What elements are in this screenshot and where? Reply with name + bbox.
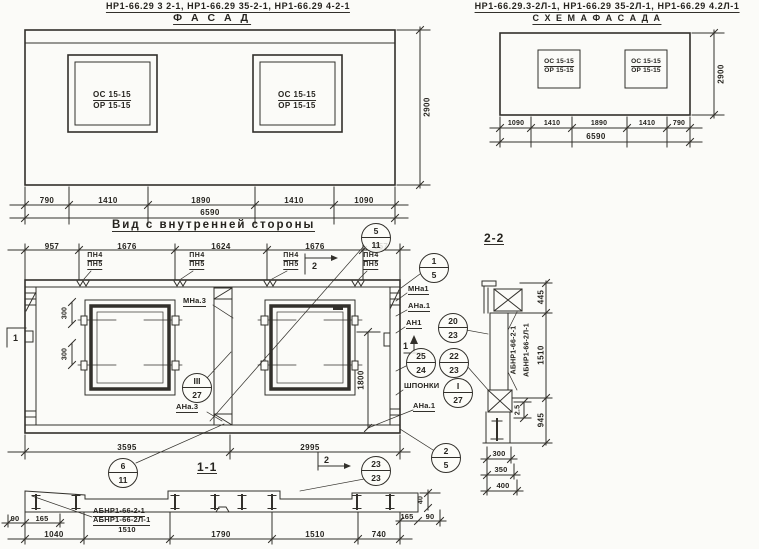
dim-label: 300 bbox=[61, 307, 70, 319]
schema-window-label: ОС 15-15 ОР 15-15 bbox=[631, 58, 661, 75]
dim-label: 1510 bbox=[537, 345, 546, 364]
detail-balloon: 2524 bbox=[406, 348, 436, 378]
dim-label: 90 bbox=[11, 514, 20, 523]
dim-label: 740 bbox=[372, 530, 387, 539]
dim-label: 300 bbox=[61, 348, 70, 360]
dim-label: 2995 bbox=[300, 443, 319, 452]
part-label: АН1 bbox=[406, 318, 422, 329]
detail-balloon: 611 bbox=[108, 458, 138, 488]
dim-label: 957 bbox=[45, 242, 60, 251]
dim-label: 1410 bbox=[98, 196, 117, 205]
part-label: АБНР1-66-2Л-1 bbox=[523, 323, 532, 377]
facade-window-label: ОС 15-15 ОР 15-15 bbox=[93, 90, 131, 111]
part-label: АНа.1 bbox=[413, 401, 435, 412]
dim-label: 1890 bbox=[191, 196, 210, 205]
section-1-1-title: 1-1 bbox=[197, 463, 217, 474]
dim-label: 1040 bbox=[44, 530, 63, 539]
dim-label: 350 bbox=[494, 465, 507, 474]
dim-label: 1090 bbox=[508, 119, 524, 128]
dim-label: 1510 bbox=[118, 525, 136, 534]
dim-label: 1090 bbox=[354, 196, 373, 205]
part-label: АБНР1-66-2-1 bbox=[510, 326, 519, 375]
detail-balloon: I27 bbox=[443, 378, 473, 408]
detail-balloon: 511 bbox=[361, 223, 391, 253]
dim-label: 790 bbox=[40, 196, 55, 205]
pn-pair: ПН4ПН5 bbox=[87, 252, 102, 270]
inner-view-title: Вид с внутренней стороны bbox=[112, 221, 315, 232]
facade-window-label: ОС 15-15 ОР 15-15 bbox=[278, 90, 316, 111]
part-label: АНа.1 bbox=[408, 301, 430, 312]
dim-label: 2900 bbox=[423, 97, 432, 116]
detail-balloon: 25 bbox=[431, 443, 461, 473]
pn-pair: ПН4ПН5 bbox=[363, 252, 378, 270]
dim-label: 1676 bbox=[305, 242, 324, 251]
detail-balloon: 2223 bbox=[439, 348, 469, 378]
dim-label: 165 bbox=[35, 514, 48, 523]
section-2-2-title: 2-2 bbox=[484, 234, 504, 245]
dim-label: 1410 bbox=[284, 196, 303, 205]
detail-balloon: III27 bbox=[182, 373, 212, 403]
dim-label: 40 bbox=[417, 496, 426, 504]
detail-balloon: 2023 bbox=[438, 313, 468, 343]
dim-label: 1676 bbox=[117, 242, 136, 251]
schema-codes: НР1-66.29.3-2Л-1, НР1-66.29 35-2Л-1, НР1… bbox=[475, 2, 740, 13]
schema-window-label: ОС 15-15 ОР 15-15 bbox=[544, 58, 574, 75]
dim-label: 1410 bbox=[639, 119, 655, 128]
dim-label: 1890 bbox=[591, 119, 607, 128]
dim-label: 1410 bbox=[544, 119, 560, 128]
pn-pair: ПН4ПН5 bbox=[283, 252, 298, 270]
dim-label: 90 bbox=[426, 512, 435, 521]
dim-label: 1624 bbox=[211, 242, 230, 251]
dim-label: 400 bbox=[496, 481, 509, 490]
dim-label: 1510 bbox=[305, 530, 324, 539]
dim-label: 2900 bbox=[717, 64, 726, 83]
part-label: МНа1 bbox=[408, 284, 429, 295]
dim-label: 6590 bbox=[586, 132, 605, 141]
pn-pair: ПН4ПН5 bbox=[189, 252, 204, 270]
dim-label: 945 bbox=[537, 413, 546, 428]
dim-label: 1790 bbox=[211, 530, 230, 539]
section-marker-2: 2 bbox=[312, 261, 317, 271]
dim-label: 2.5 bbox=[514, 405, 523, 415]
dim-label: 165 bbox=[400, 512, 413, 521]
part-label: МНа.3 bbox=[183, 296, 206, 307]
facade-title: Ф А С А Д bbox=[173, 14, 251, 25]
section-marker-1: 1 bbox=[13, 333, 18, 343]
part-label: ШПОНКИ bbox=[404, 381, 439, 390]
detail-balloon: 2323 bbox=[361, 456, 391, 486]
blueprint-sheet: НР1-66.29 3 2-1, НР1-66.29 35-2-1, НР1-6… bbox=[0, 0, 759, 549]
dim-label: 6590 bbox=[200, 208, 219, 217]
detail-balloon: 15 bbox=[419, 253, 449, 283]
schema-title: С Х Е М А Ф А С А Д А bbox=[532, 14, 661, 25]
dim-label: 3595 bbox=[117, 443, 136, 452]
dim-label: 445 bbox=[537, 290, 546, 305]
part-label: АНа.3 bbox=[176, 402, 198, 413]
dim-label: 790 bbox=[673, 119, 685, 128]
dim-label: 1800 bbox=[357, 370, 366, 389]
dim-label: 300 bbox=[492, 449, 505, 458]
section-marker-2: 2 bbox=[324, 455, 329, 465]
